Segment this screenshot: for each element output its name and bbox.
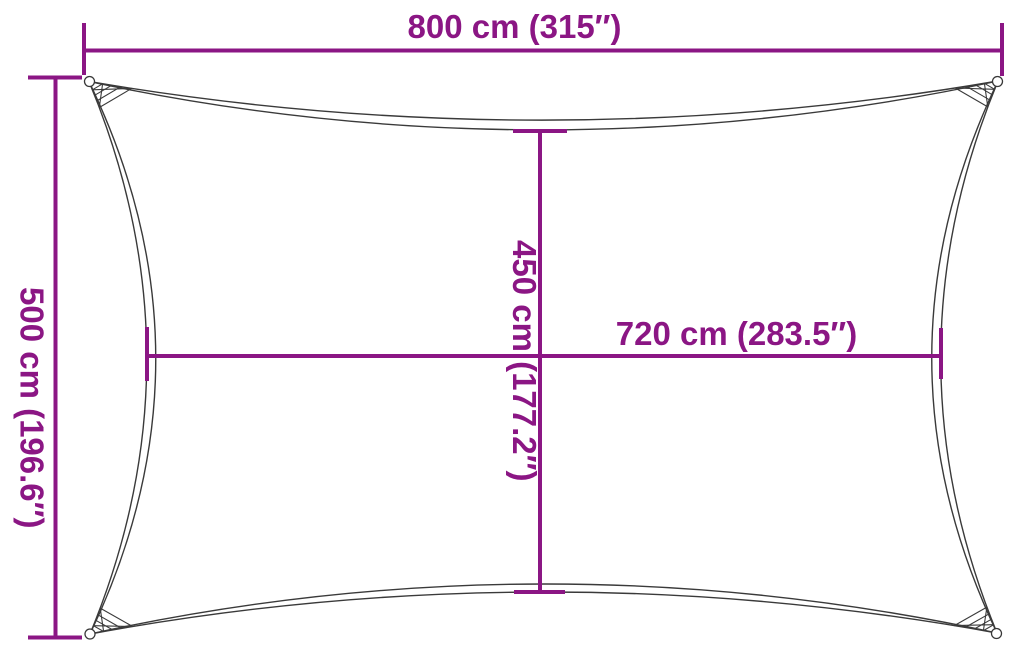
svg-text:500 cm (196.6″): 500 cm (196.6″) bbox=[14, 287, 51, 528]
svg-text:800 cm (315″): 800 cm (315″) bbox=[408, 8, 622, 45]
svg-text:450 cm (177.2″): 450 cm (177.2″) bbox=[506, 240, 543, 481]
svg-text:720 cm (283.5″): 720 cm (283.5″) bbox=[616, 315, 857, 352]
